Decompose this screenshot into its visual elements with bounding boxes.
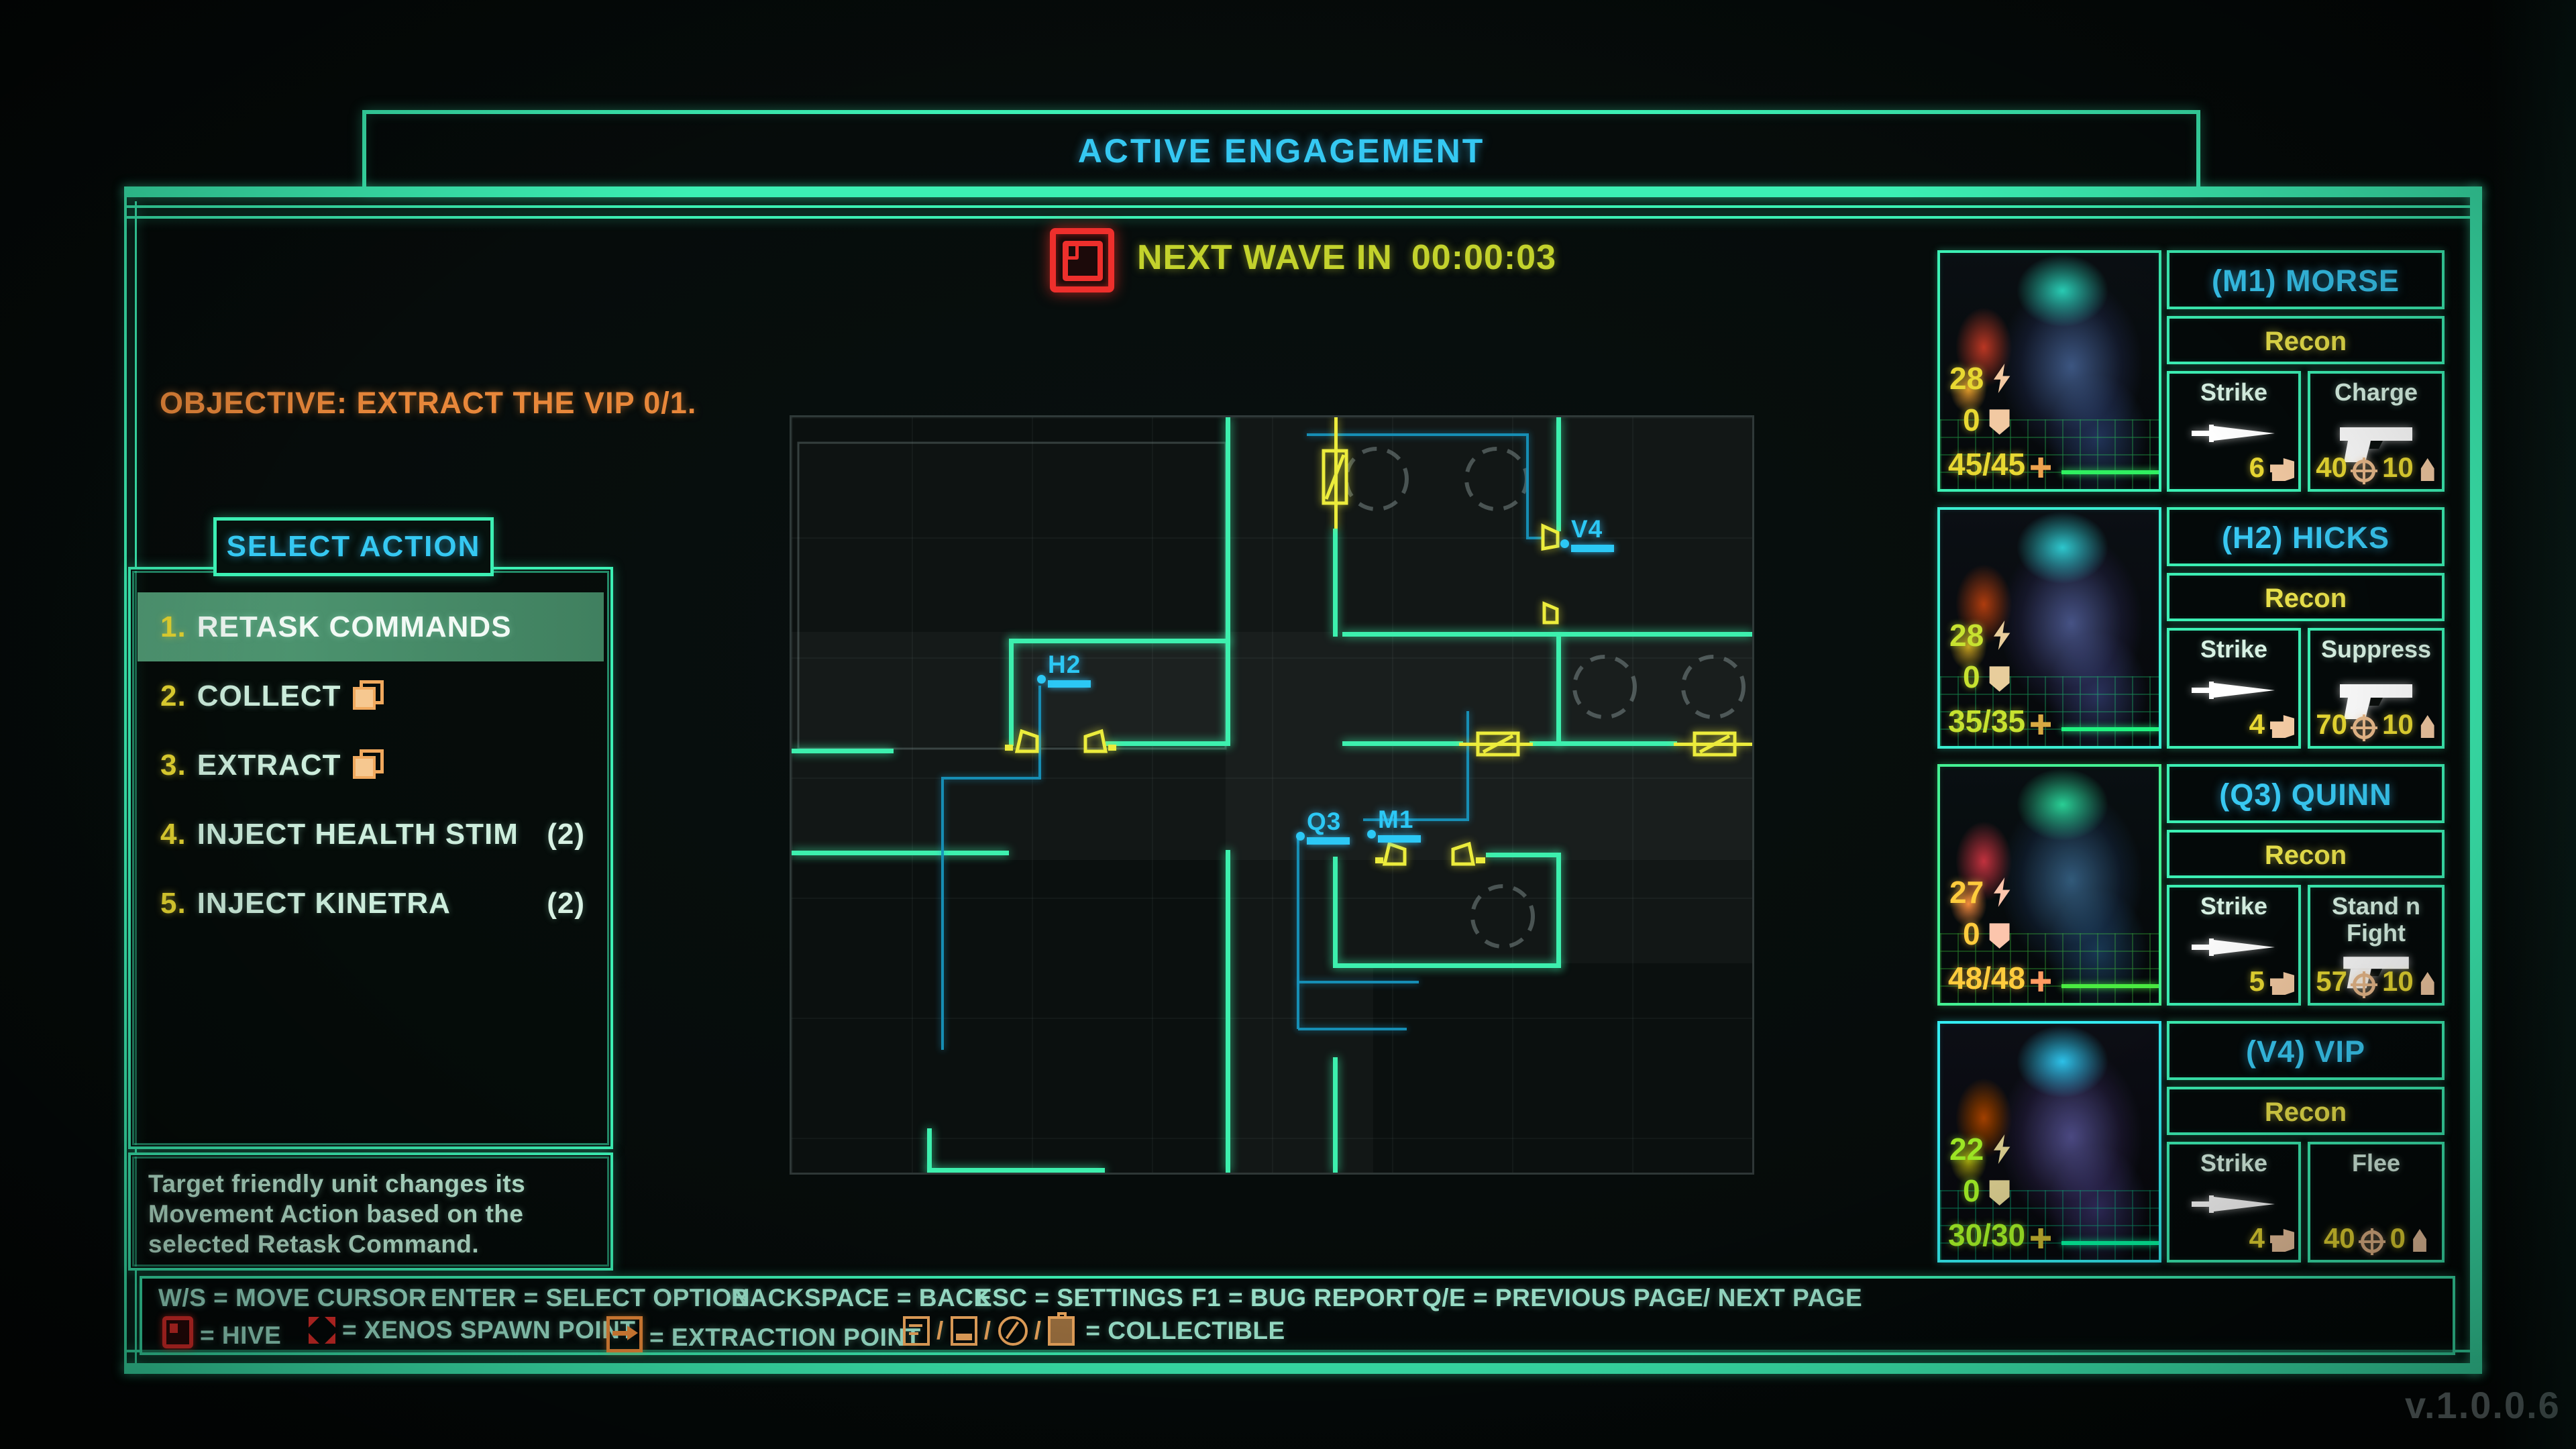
- unit-card-vip[interactable]: 22 0 30/30 (V4) VIP Recon Strike 4 Flee …: [1932, 1017, 2450, 1268]
- xenos-spawn-icon: [309, 1317, 335, 1344]
- next-wave-timer: 00:00:03: [1411, 238, 1556, 277]
- knife-icon: [2190, 422, 2277, 445]
- unit-label: M1: [1378, 806, 1421, 834]
- menu-item-number: 4.: [160, 818, 186, 851]
- shield-icon: [1988, 922, 2011, 949]
- datapad-icon: [951, 1316, 977, 1346]
- health-line: [2061, 1241, 2159, 1245]
- menu-item-retask-commands[interactable]: 1.RETASK COMMANDS: [138, 592, 604, 661]
- armor-value: 0: [1963, 659, 1980, 694]
- shield-icon: [1988, 408, 2011, 435]
- health-plus-icon: [2031, 714, 2051, 735]
- health-plus-icon: [2031, 1228, 2051, 1248]
- title-banner: ACTIVE ENGAGEMENT: [362, 110, 2200, 192]
- frame-top-thick: [124, 186, 2482, 197]
- menu-item-number: 1.: [160, 610, 186, 643]
- map-unit-V4[interactable]: V4: [1571, 515, 1614, 552]
- hp-value: 45/45: [1948, 447, 2025, 482]
- menu-item-label: INJECT KINETRA: [197, 887, 451, 920]
- version-text: v.1.0.0.6: [2405, 1383, 2561, 1427]
- menu-item-number: 5.: [160, 887, 186, 920]
- melee-value: 4: [2249, 1222, 2265, 1254]
- menu-item-inject-kinetra[interactable]: 5.INJECT KINETRA(2): [138, 869, 604, 938]
- unit-class: Recon: [2169, 1097, 2442, 1128]
- menu-item-inject-health-stim[interactable]: 4.INJECT HEALTH STIM(2): [138, 800, 604, 869]
- shield-icon: [1988, 665, 2011, 692]
- ability-name: Strike: [2169, 893, 2298, 920]
- frame-top-thin2: [124, 216, 2482, 219]
- hint-select-option: ENTER = SELECT OPTION: [431, 1284, 750, 1312]
- unit-card-hicks[interactable]: 28 0 35/35 (H2) HICKS Recon Strike 4 Sup…: [1932, 503, 2450, 754]
- move-value: 28: [1949, 618, 1984, 653]
- health-line: [2061, 984, 2159, 988]
- armor-value: 0: [1963, 1173, 1980, 1208]
- bullet-icon: [2411, 1229, 2428, 1252]
- ability-name: Flee: [2310, 1150, 2442, 1177]
- ammo-value: 10: [2382, 965, 2414, 997]
- map-unit-M1[interactable]: M1: [1378, 806, 1421, 843]
- menu-item-extract[interactable]: 3.EXTRACT: [138, 731, 604, 800]
- menu-item-label: RETASK COMMANDS: [197, 610, 512, 643]
- ability-strike[interactable]: Strike 4: [2167, 628, 2301, 749]
- health-plus-icon: [2031, 458, 2051, 478]
- game-screen: ACTIVE ENGAGEMENT NEXT WAVE IN00:00:03 O…: [0, 0, 2576, 1449]
- crosshair-icon: [2353, 716, 2375, 739]
- bullet-icon: [2419, 972, 2436, 995]
- unit-name: (Q3) QUINN: [2169, 777, 2442, 812]
- hive-alert-icon: [1050, 228, 1114, 292]
- menu-item-number: 2.: [160, 680, 186, 712]
- crosshair-icon: [2353, 973, 2375, 996]
- action-menu-list: 1.RETASK COMMANDS 2.COLLECT 3.EXTRACT 4.…: [138, 592, 604, 938]
- crosshair-icon: [2361, 1230, 2383, 1253]
- bullet-icon: [2419, 715, 2436, 738]
- hint-move-cursor: W/S = MOVE CURSOR: [158, 1284, 427, 1312]
- move-value: 27: [1949, 875, 1984, 910]
- fist-icon: [2270, 458, 2294, 481]
- ability-strike[interactable]: Strike 6: [2167, 371, 2301, 492]
- unit-portrait: 22 0 30/30: [1937, 1021, 2161, 1263]
- action-description-box: Target friendly unit changes its Movemen…: [128, 1152, 613, 1271]
- ability-name: Suppress: [2310, 636, 2442, 663]
- ability-name: Strike: [2169, 636, 2298, 663]
- fist-icon: [2270, 1229, 2294, 1252]
- unit-label: H2: [1048, 651, 1091, 679]
- squad-panel: 28 0 45/45 (M1) MORSE Recon Strike 6 Cha…: [1932, 246, 2450, 1268]
- description-line: selected Retask Command.: [148, 1229, 610, 1259]
- action-menu-title: SELECT ACTION: [227, 530, 481, 563]
- hp-value: 30/30: [1948, 1218, 2025, 1252]
- unit-dot: [1296, 832, 1305, 841]
- move-icon: [1990, 877, 2013, 907]
- melee-value: 5: [2249, 965, 2265, 997]
- shield-icon: [1988, 1179, 2011, 1205]
- knife-icon: [2190, 1193, 2277, 1216]
- hint-settings: ESC = SETTINGS: [975, 1284, 1183, 1312]
- collectible-stack-icon: [353, 749, 384, 779]
- unit-name: (H2) HICKS: [2169, 521, 2442, 555]
- ability-strike[interactable]: Strike 4: [2167, 1142, 2301, 1263]
- unit-dot: [1367, 830, 1376, 839]
- case-icon: [1048, 1316, 1075, 1346]
- hp-value: 35/35: [1948, 704, 2025, 739]
- next-wave-label: NEXT WAVE IN: [1137, 238, 1393, 277]
- knife-icon: [2190, 936, 2277, 959]
- melee-value: 6: [2249, 451, 2265, 483]
- menu-item-count: (2): [547, 869, 585, 938]
- page-title: ACTIVE ENGAGEMENT: [366, 131, 2196, 170]
- fist-icon: [2270, 715, 2294, 738]
- canister-icon: [998, 1316, 1028, 1346]
- menu-item-label: INJECT HEALTH STIM: [197, 818, 519, 851]
- unit-dot: [1560, 539, 1569, 548]
- armor-value: 0: [1963, 402, 1980, 437]
- health-line: [2061, 727, 2159, 731]
- menu-item-count: (2): [547, 800, 585, 869]
- move-value: 28: [1949, 361, 1984, 396]
- unit-underline: [1571, 545, 1614, 552]
- ammo-value: 0: [2390, 1222, 2406, 1254]
- armor-value: 0: [1963, 916, 1980, 951]
- move-icon: [1990, 1134, 2013, 1164]
- unit-portrait: 28 0 45/45: [1937, 250, 2161, 492]
- ammo-value: 10: [2382, 451, 2414, 483]
- ability-name: Stand n Fight: [2310, 893, 2442, 947]
- move-icon: [1990, 364, 2013, 393]
- frame-top-thin1: [124, 205, 2482, 208]
- unit-card-quinn[interactable]: 27 0 48/48 (Q3) QUINN Recon Strike 5 Sta…: [1932, 760, 2450, 1011]
- ability-stand-n-fight[interactable]: Stand n Fight 5710: [2308, 885, 2445, 1006]
- health-plus-icon: [2031, 971, 2051, 991]
- unit-dot: [1037, 675, 1046, 684]
- action-menu-title-box: SELECT ACTION: [213, 517, 494, 576]
- move-icon: [1990, 621, 2013, 650]
- ability-name: Strike: [2169, 379, 2298, 406]
- ability-name: Strike: [2169, 1150, 2298, 1177]
- control-bar: W/S = MOVE CURSOR ENTER = SELECT OPTION …: [140, 1276, 2455, 1355]
- map-unit-Q3[interactable]: Q3: [1307, 808, 1350, 845]
- unit-name: (M1) MORSE: [2169, 264, 2442, 299]
- unit-underline: [1048, 680, 1091, 688]
- action-menu: 1.RETASK COMMANDS 2.COLLECT 3.EXTRACT 4.…: [128, 567, 613, 1149]
- frame-left-thin1: [124, 186, 127, 1374]
- menu-item-label: EXTRACT: [197, 749, 341, 782]
- unit-label: Q3: [1307, 808, 1350, 836]
- extraction-point-icon: [606, 1316, 643, 1352]
- ability-name: Charge: [2310, 379, 2442, 406]
- unit-class: Recon: [2169, 327, 2442, 357]
- ability-charge[interactable]: Charge 4010: [2308, 371, 2445, 492]
- unit-underline: [1378, 835, 1421, 843]
- ability-flee[interactable]: Flee 400: [2308, 1142, 2445, 1263]
- legend-collectible: ///= COLLECTIBLE: [899, 1316, 1285, 1346]
- map-unit-H2[interactable]: H2: [1048, 651, 1091, 688]
- frame-right-thick: [2470, 186, 2482, 1374]
- unit-card-morse[interactable]: 28 0 45/45 (M1) MORSE Recon Strike 6 Cha…: [1932, 246, 2450, 497]
- menu-item-number: 3.: [160, 749, 186, 782]
- hint-bug-report: F1 = BUG REPORT: [1191, 1284, 1419, 1312]
- legend-xenos-spawn: = XENOS SPAWN POINT: [309, 1316, 635, 1344]
- hint-back: BACKSPACE = BACK: [731, 1284, 992, 1312]
- hive-icon: [162, 1316, 193, 1348]
- legend-extraction: = EXTRACTION POINT: [606, 1316, 921, 1352]
- unit-underline: [1307, 837, 1350, 845]
- legend-hive: = HIVE: [162, 1316, 281, 1350]
- unit-portrait: 27 0 48/48: [1937, 764, 2161, 1006]
- move-value: 22: [1949, 1132, 1984, 1167]
- next-wave-text: NEXT WAVE IN00:00:03: [1137, 237, 1556, 278]
- knife-icon: [2190, 679, 2277, 702]
- unit-portrait: 28 0 35/35: [1937, 507, 2161, 749]
- unit-class: Recon: [2169, 584, 2442, 614]
- intel-doc-icon: [903, 1316, 930, 1346]
- collectible-stack-icon: [353, 680, 384, 710]
- menu-item-label: COLLECT: [197, 680, 341, 712]
- fist-icon: [2270, 972, 2294, 995]
- accuracy-value: 57: [2316, 965, 2347, 997]
- bezel-glow: [2489, 0, 2576, 1449]
- crosshair-icon: [2353, 460, 2375, 482]
- ammo-value: 10: [2382, 708, 2414, 740]
- objective-text: OBJECTIVE: EXTRACT THE VIP 0/1.: [160, 386, 696, 421]
- description-line: Movement Action based on the: [148, 1199, 610, 1229]
- accuracy-value: 40: [2316, 451, 2347, 483]
- hint-page-nav: Q/E = PREVIOUS PAGE/ NEXT PAGE: [1422, 1284, 1862, 1312]
- unit-name: (V4) VIP: [2169, 1034, 2442, 1069]
- bullet-icon: [2419, 458, 2436, 481]
- ability-strike[interactable]: Strike 5: [2167, 885, 2301, 1006]
- unit-label: V4: [1571, 515, 1614, 543]
- accuracy-value: 40: [2324, 1222, 2355, 1254]
- frame-bottom-thick: [124, 1363, 2482, 1374]
- unit-class: Recon: [2169, 841, 2442, 871]
- menu-item-collect[interactable]: 2.COLLECT: [138, 661, 604, 731]
- hp-value: 48/48: [1948, 961, 2025, 996]
- melee-value: 4: [2249, 708, 2265, 740]
- tactical-map[interactable]: H2 V4 Q3 M1: [792, 417, 1752, 1173]
- accuracy-value: 70: [2316, 708, 2347, 740]
- description-line: Target friendly unit changes its: [148, 1169, 610, 1199]
- ability-suppress[interactable]: Suppress 7010: [2308, 628, 2445, 749]
- health-line: [2061, 470, 2159, 474]
